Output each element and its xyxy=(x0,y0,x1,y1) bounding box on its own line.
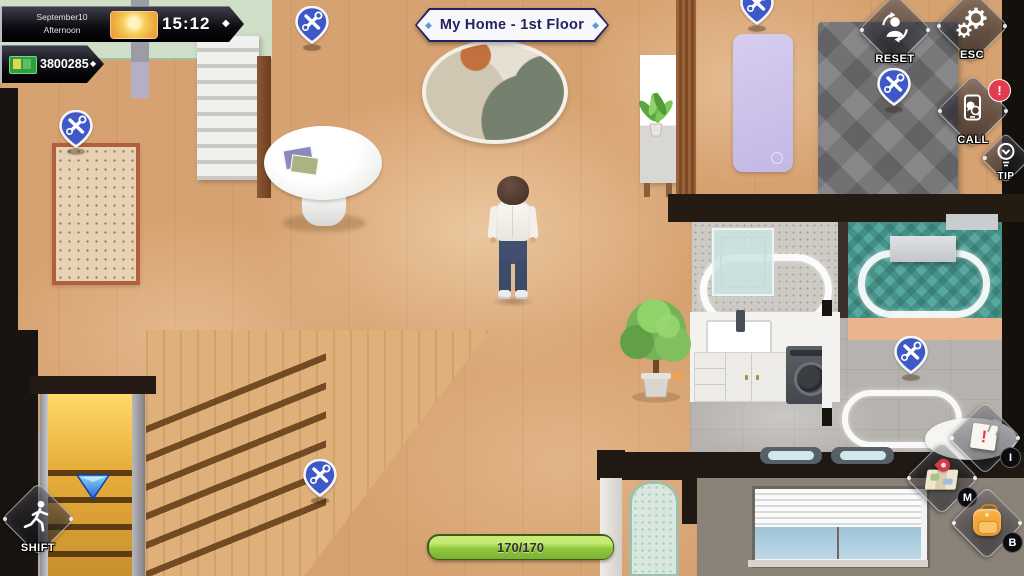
esc-button[interactable]: ESC xyxy=(936,0,1008,62)
wooden-door xyxy=(676,0,696,196)
cash-icon-detail xyxy=(13,59,21,69)
bath-shelf-small xyxy=(946,214,998,230)
potted-plant xyxy=(630,78,682,144)
gear-icon xyxy=(954,5,990,41)
shift-label: SHIFT xyxy=(21,542,55,554)
stair-steps xyxy=(146,353,326,576)
diamond-decor: ◆ xyxy=(425,20,432,31)
round-table xyxy=(264,126,382,234)
runner-icon xyxy=(22,499,54,533)
washer-panel xyxy=(790,350,826,356)
character-shoe xyxy=(515,290,528,299)
potted-tree xyxy=(610,290,702,404)
period-text: Afternoon xyxy=(16,24,108,37)
reset-person-icon xyxy=(878,10,912,44)
location-title: My Home - 1st Floor xyxy=(440,17,584,33)
backpack-body xyxy=(973,509,1001,536)
repair-task-pin[interactable] xyxy=(58,110,94,156)
door-line xyxy=(751,353,752,401)
tip-chevron-icon xyxy=(995,142,1017,168)
repair-task-pin[interactable] xyxy=(294,6,330,52)
bathroom-left-floor xyxy=(692,222,838,318)
cash-icon-detail xyxy=(23,59,31,69)
arch-rug xyxy=(629,481,679,576)
backpack-clasp xyxy=(985,513,989,517)
door-line xyxy=(725,353,726,401)
datetime-banner: September10 Afternoon 15:12 ◆ xyxy=(0,6,246,42)
glass-divider xyxy=(822,300,832,426)
yoga-mat xyxy=(733,34,793,172)
game-viewport: September10 Afternoon 15:12 ◆ 3800285 ◆ … xyxy=(0,0,1024,576)
divider-cap xyxy=(822,408,832,426)
backpack-icon xyxy=(973,504,1001,537)
upper-staircase-top xyxy=(197,36,259,180)
shift-button[interactable]: SHIFT xyxy=(2,483,74,555)
bag-hotkey-badge: B xyxy=(1002,532,1023,553)
bath-mat-square xyxy=(712,228,774,296)
money-banner: 3800285 ◆ xyxy=(0,45,106,83)
stairs-down-arrow[interactable] xyxy=(74,472,112,502)
stair-rail-right xyxy=(132,394,145,576)
reset-label: RESET xyxy=(875,53,914,65)
player-character[interactable] xyxy=(485,176,541,310)
sink-faucet xyxy=(736,310,745,332)
wall-pillar-base xyxy=(131,62,149,98)
cabinet-knob xyxy=(756,375,759,380)
magazine xyxy=(290,154,319,176)
table-top xyxy=(264,126,382,200)
white-pillar xyxy=(600,478,622,576)
character-shoe xyxy=(498,290,511,299)
stamina-bar: 170/170 xyxy=(427,534,614,560)
pillar-cap xyxy=(597,450,625,480)
call-alert-badge: ! xyxy=(988,79,1011,102)
bath-mat xyxy=(831,447,894,464)
cabinet-knob xyxy=(745,375,748,380)
tip-button[interactable]: TIP xyxy=(981,133,1024,183)
phone-chat-icon xyxy=(958,92,988,124)
patterned-rug xyxy=(52,143,140,285)
bathroom-right-floor xyxy=(848,222,1002,318)
divider-cap xyxy=(822,300,832,316)
window-sill xyxy=(748,560,928,567)
laundry-cabinets xyxy=(694,352,788,402)
character-hand xyxy=(490,237,496,243)
bath-mat-center xyxy=(768,451,814,460)
bath-mat xyxy=(760,447,822,464)
map-detail xyxy=(930,474,940,481)
diamond-decor: ◆ xyxy=(90,59,96,68)
character-shirt xyxy=(496,201,530,241)
character-leg xyxy=(515,260,527,292)
bathroom-divider-wall xyxy=(838,222,848,318)
map-detail xyxy=(942,479,953,485)
info-hotkey-badge: I xyxy=(1000,447,1021,468)
mat-logo xyxy=(771,152,783,164)
diamond-decor: ◆ xyxy=(592,20,599,31)
stamina-value: 170/170 xyxy=(429,536,613,559)
repair-task-pin[interactable] xyxy=(893,336,929,382)
date-text: September10 xyxy=(16,11,108,24)
diamond-decor: ◆ xyxy=(222,18,230,29)
map-pin-hole xyxy=(940,462,947,469)
bath-shelf xyxy=(890,236,956,262)
repair-task-pin[interactable] xyxy=(739,0,775,33)
bath-mat-inner xyxy=(720,236,766,288)
tip-label: TIP xyxy=(997,171,1014,182)
time-display: 15:12 xyxy=(162,14,210,34)
location-banner: ◆ My Home - 1st Floor ◆ xyxy=(415,8,609,42)
cash-icon xyxy=(9,56,37,74)
window-blinds xyxy=(755,489,921,527)
location-banner-face: ◆ My Home - 1st Floor ◆ xyxy=(417,10,607,40)
backpack-pocket xyxy=(978,521,998,534)
reset-button[interactable]: RESET xyxy=(859,0,931,66)
repair-task-pin[interactable] xyxy=(302,459,338,505)
left-wall xyxy=(0,88,18,332)
character-hair xyxy=(497,176,529,205)
bag-button[interactable]: B xyxy=(951,487,1023,559)
weather-sun-icon xyxy=(110,11,158,39)
date-display: September10 Afternoon xyxy=(16,11,108,37)
console-leg xyxy=(644,183,650,197)
character-hand xyxy=(530,237,536,243)
bath-mat-center xyxy=(840,451,886,460)
round-rug xyxy=(422,40,568,144)
esc-label: ESC xyxy=(960,49,984,61)
character-leg xyxy=(499,260,511,292)
stairwell-frame xyxy=(30,376,156,394)
window xyxy=(752,486,930,568)
window-mullion xyxy=(837,527,839,559)
shirt-button-line xyxy=(512,206,513,238)
money-amount: 3800285 xyxy=(40,57,89,71)
repair-task-pin[interactable] xyxy=(876,68,912,114)
stamina-fill: 170/170 xyxy=(429,536,613,559)
